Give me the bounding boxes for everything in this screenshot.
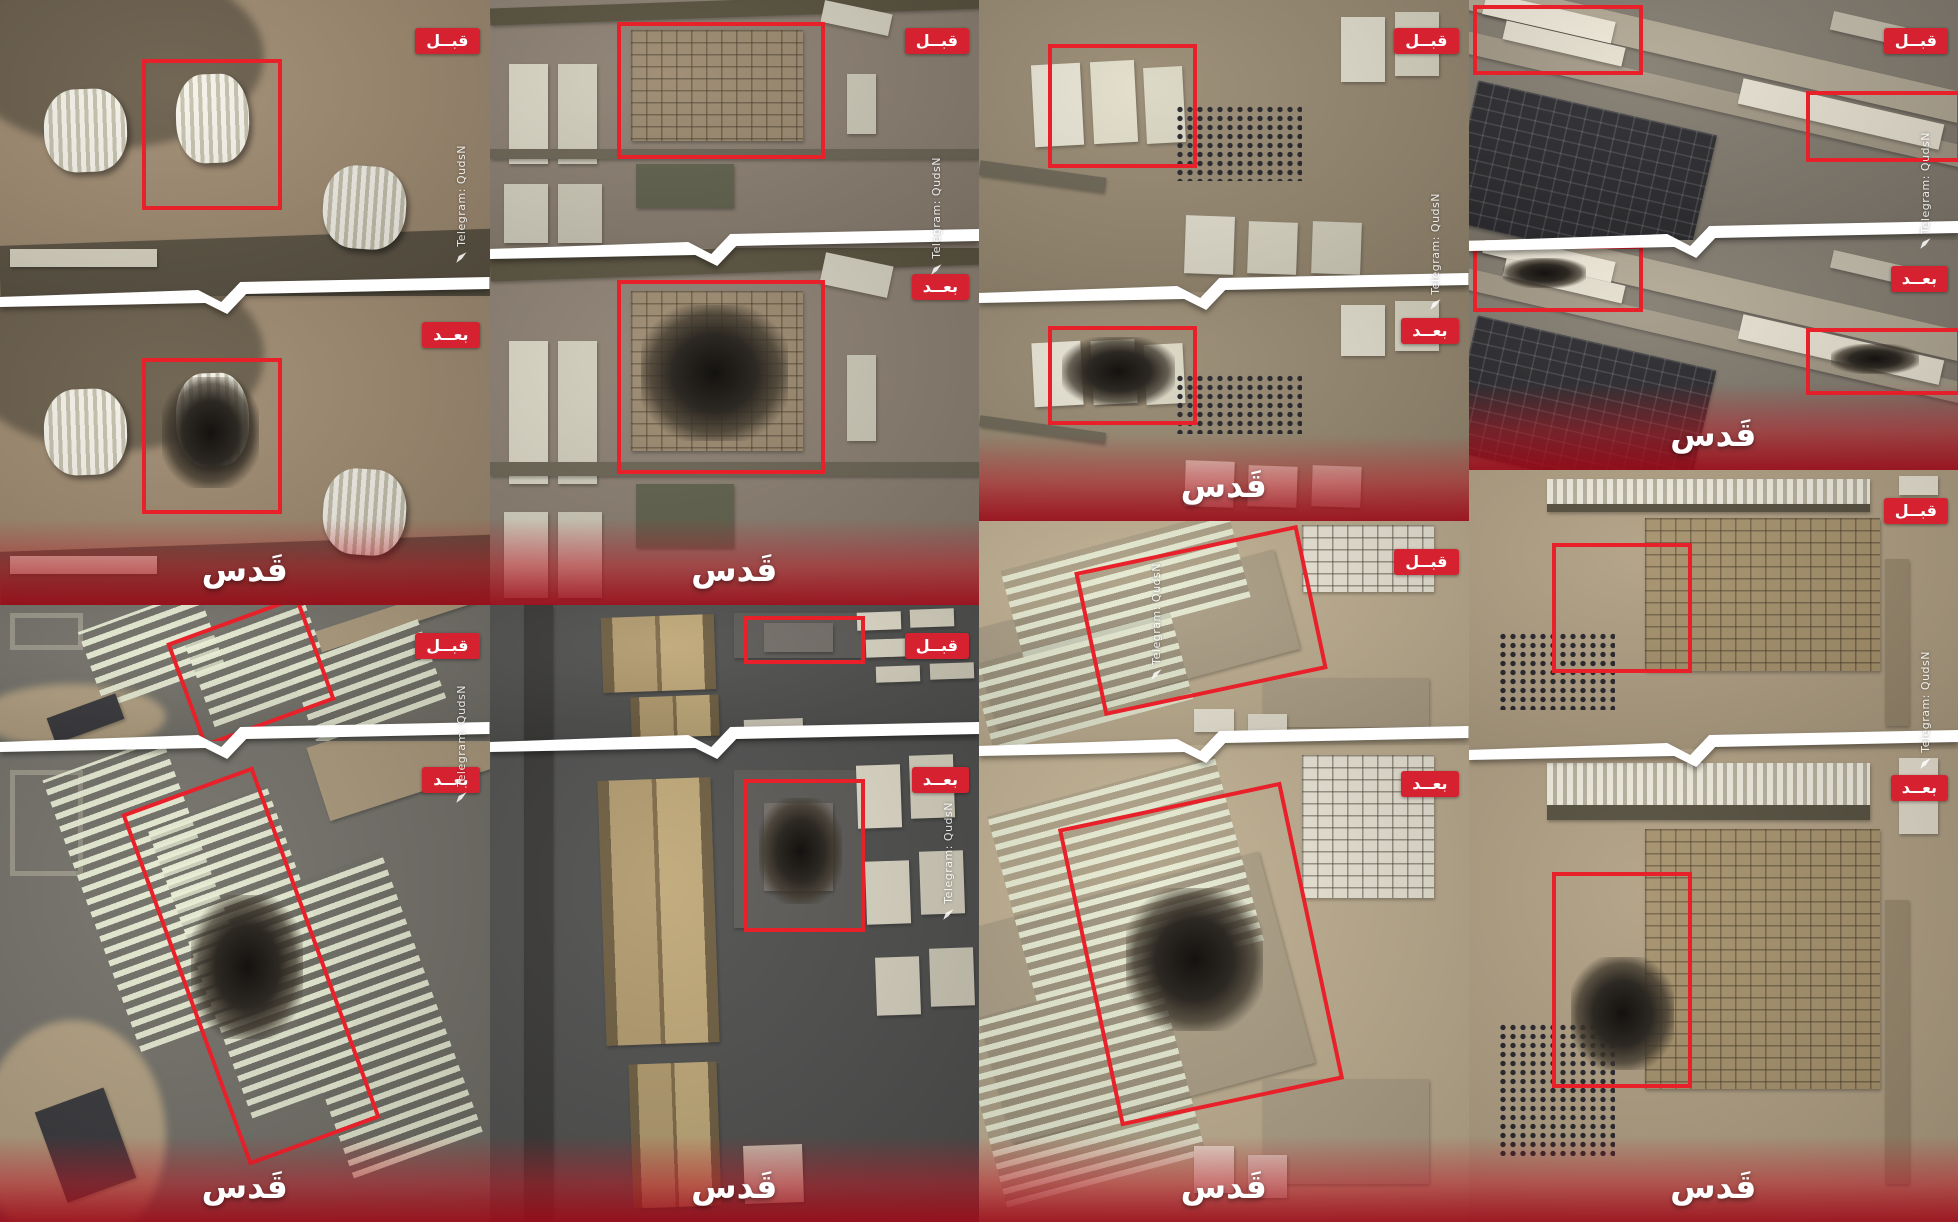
torn-edge-separator (979, 272, 1469, 312)
scene-building (865, 860, 911, 924)
quds-logo-watermark: قَدس (1181, 466, 1267, 505)
scene-building (919, 851, 965, 915)
scene-building (1899, 476, 1938, 495)
before-after-pair: قبــل بعــد قَدس Telegram: QudsN (979, 0, 1469, 521)
target-box (142, 59, 282, 209)
target-box (744, 779, 865, 931)
before-badge: قبــل (1884, 498, 1948, 524)
quds-logo-watermark: قَدس (1181, 1167, 1267, 1206)
target-box (1048, 44, 1198, 169)
scene-gable (597, 777, 719, 1046)
scene-building (929, 947, 975, 1006)
after-image: بعــد قَدس (1469, 749, 1958, 1222)
after-badge: بعــد (1401, 771, 1458, 797)
before-image: قبــل (0, 0, 490, 296)
torn-edge-separator (1469, 220, 1958, 260)
before-after-pair: قبــل بعــد قَدس Telegram: QudsN (1469, 0, 1958, 470)
before-badge: قبــل (905, 633, 969, 659)
after-image: بعــد قَدس (490, 741, 980, 1222)
after-badge: بعــد (1401, 318, 1458, 344)
before-badge: قبــل (1394, 549, 1458, 575)
after-image: بعــد قَدس (0, 741, 490, 1222)
target-box (1806, 91, 1958, 161)
before-after-pair: قبــل بعــد قَدس Telegram: QudsN (490, 0, 980, 605)
before-badge: قبــل (415, 28, 479, 54)
target-box (1473, 5, 1643, 75)
target-box (142, 358, 282, 514)
scene-building (910, 608, 955, 627)
scene-building (1311, 221, 1362, 275)
target-box (617, 280, 826, 474)
torn-edge-separator (0, 721, 490, 761)
scene-building (1263, 678, 1429, 727)
before-badge: قبــل (415, 633, 479, 659)
scene-hangar (43, 387, 129, 476)
before-image: قبــل (979, 521, 1469, 745)
torn-edge-separator (979, 725, 1469, 765)
scene-building (930, 662, 975, 680)
before-image: قبــل (1469, 0, 1958, 240)
torn-edge-separator (490, 721, 980, 761)
before-after-pair: قبــل بعــد قَدس Telegram: QudsN (490, 605, 980, 1222)
scene-gable (601, 614, 716, 693)
quds-logo-watermark: قَدس (202, 1167, 288, 1206)
scene-building (1247, 221, 1298, 275)
scene-building (876, 665, 921, 683)
scene-building (1341, 17, 1385, 81)
scene-rows-h (1547, 763, 1870, 806)
before-after-pair: قبــل بعــد قَدس Telegram: QudsN (0, 0, 490, 605)
quds-logo-watermark: قَدس (1670, 1167, 1756, 1206)
quds-logo-watermark: قَدس (691, 1167, 777, 1206)
quds-logo-watermark: قَدس (1670, 415, 1756, 454)
target-box (1552, 543, 1692, 673)
before-badge: قبــل (1884, 28, 1948, 54)
composite-grid: قبــل بعــد قَدس Telegram: QudsN قبــل (0, 0, 1958, 1222)
scene-hangar (43, 87, 129, 173)
scene-blocks-dark (1469, 80, 1717, 240)
scene-building (847, 74, 876, 134)
after-badge: بعــد (422, 322, 479, 348)
scene-building (1547, 504, 1870, 512)
before-image: قبــل (1469, 470, 1958, 748)
scene-building (847, 355, 876, 441)
torn-edge-separator (1469, 729, 1958, 769)
scene-hangar (320, 163, 409, 252)
after-badge: بعــد (912, 767, 969, 793)
target-box (617, 22, 826, 159)
after-image: بعــد قَدس (0, 296, 490, 604)
torn-edge-separator (0, 276, 490, 316)
after-image: بعــد قَدس (1469, 240, 1958, 471)
scene-ring (10, 613, 84, 650)
torn-edge-separator (490, 228, 980, 268)
before-after-pair: قبــل بعــد قَدس Telegram: QudsN (1469, 470, 1958, 1222)
scene-rows-h (1547, 479, 1870, 504)
scene-building (875, 956, 921, 1015)
scene-building (1547, 805, 1870, 819)
before-after-pair: قبــل بعــد قَدس Telegram: QudsN (0, 605, 490, 1222)
after-image: بعــد قَدس (979, 292, 1469, 521)
after-badge: بعــد (912, 274, 969, 300)
after-image: بعــد قَدس (490, 248, 980, 605)
scene-building (1885, 559, 1909, 726)
scene-building (1341, 305, 1385, 355)
scene-building (10, 249, 157, 267)
quds-logo-watermark: قَدس (691, 550, 777, 589)
before-badge: قبــل (1394, 28, 1458, 54)
before-image: قبــل (979, 0, 1469, 292)
scene-building (636, 164, 734, 209)
after-image: بعــد قَدس (979, 745, 1469, 1222)
target-box (744, 616, 865, 665)
after-badge: بعــد (1891, 775, 1948, 801)
before-image: قبــل (490, 0, 980, 248)
after-badge: بعــد (422, 767, 479, 793)
scene-building (1899, 801, 1938, 834)
target-box (1552, 872, 1692, 1088)
before-after-pair: قبــل بعــد قَدس Telegram: QudsN (979, 521, 1469, 1222)
after-badge: بعــد (1891, 266, 1948, 292)
quds-logo-watermark: قَدس (202, 550, 288, 589)
target-box (1048, 326, 1198, 426)
before-badge: قبــل (905, 28, 969, 54)
scene-building (1184, 215, 1235, 275)
